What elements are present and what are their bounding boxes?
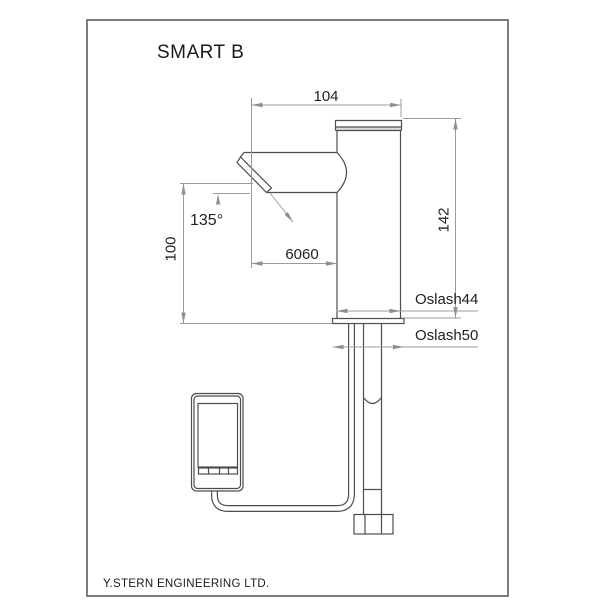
- dimension-label-spray-angle: 135°: [190, 213, 223, 229]
- drawing-sheet: SMART B 104 6060 135° 100 142 Oslash44 O…: [0, 0, 600, 600]
- faucet-body: [336, 121, 402, 319]
- dimension-lines: [180, 98, 478, 347]
- dimension-label-body-height: 142: [437, 207, 452, 232]
- dimension-label-base-diameter: Oslash50: [415, 328, 478, 343]
- dimension-label-outlet-height: 100: [164, 236, 179, 261]
- dimension-label-outlet-offset: 6060: [285, 247, 318, 262]
- mounting-nut: [354, 515, 393, 535]
- dimension-label-reach: 104: [313, 89, 338, 104]
- faucet-technical-drawing: [0, 0, 600, 600]
- footer-text: Y.STERN ENGINEERING LTD.: [103, 578, 270, 590]
- dimension-label-body-diameter: Oslash44: [415, 292, 478, 307]
- page-title: SMART B: [157, 42, 244, 64]
- control-box: [192, 394, 244, 492]
- inlet-shank: [364, 322, 382, 515]
- base-plate: [333, 319, 405, 324]
